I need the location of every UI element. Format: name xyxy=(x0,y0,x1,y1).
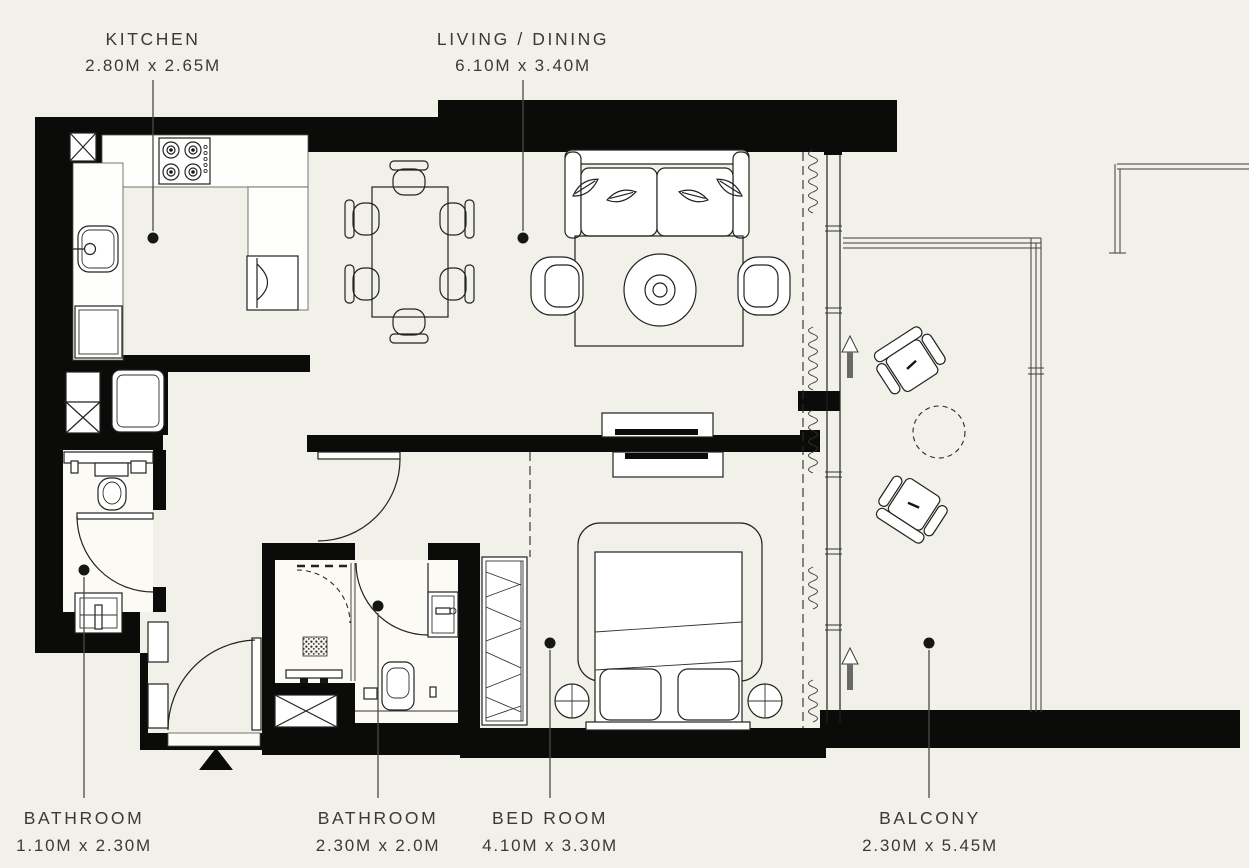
wall-segment xyxy=(262,543,355,560)
direction-arrow-icon xyxy=(842,648,858,690)
floor-plan: KITCHEN 2.80M x 2.65M LIVING / DINING 6.… xyxy=(0,0,1249,868)
wash-basin-icon xyxy=(75,593,122,633)
balcony-railing xyxy=(843,238,1044,712)
living-area xyxy=(531,150,790,437)
wall-segment xyxy=(63,433,163,450)
entrance-marker-icon xyxy=(199,748,233,770)
paper-holder-icon xyxy=(131,461,146,473)
service-shaft-icon xyxy=(70,133,96,161)
stove-icon xyxy=(159,138,210,184)
washing-machine-icon xyxy=(112,370,164,432)
wall-segment xyxy=(458,543,480,755)
tap-icon xyxy=(430,687,436,697)
tap-icon xyxy=(71,461,78,473)
service-shaft-icon xyxy=(66,372,100,433)
sofa xyxy=(565,150,749,238)
dining-area xyxy=(345,161,474,343)
armchair xyxy=(531,257,583,315)
round-coffee-table xyxy=(624,254,696,326)
balcony-round-table-icon xyxy=(913,406,965,458)
wall-segment xyxy=(820,710,1240,748)
dining-chair xyxy=(440,200,474,238)
wall-segment xyxy=(262,543,275,683)
wardrobe-icon xyxy=(482,557,527,725)
room-label-kitchen: KITCHEN xyxy=(105,29,200,49)
balcony-chair-icon xyxy=(868,322,949,400)
room-dims-kitchen: 2.80M x 2.65M xyxy=(85,56,221,75)
toilet-icon xyxy=(382,662,414,710)
room-label-bathroom-1: BATHROOM xyxy=(24,808,145,828)
dining-chair xyxy=(345,265,379,303)
service-shaft-icon xyxy=(275,695,337,727)
wall-segment xyxy=(35,372,63,653)
wall-segment xyxy=(798,391,840,411)
oven-icon xyxy=(247,256,298,310)
dining-chair xyxy=(390,309,428,343)
wall-segment xyxy=(460,728,826,758)
room-dims-bathroom-1: 1.10M x 2.30M xyxy=(16,836,152,855)
room-label-bedroom: BED ROOM xyxy=(492,808,608,828)
double-bed xyxy=(586,552,750,730)
wall-segment xyxy=(307,435,807,452)
direction-arrow-icon xyxy=(842,336,858,378)
bedroom-door xyxy=(318,452,400,541)
room-label-living-dining: LIVING / DINING xyxy=(437,29,609,49)
nightstand-icon xyxy=(748,684,782,718)
dining-chair xyxy=(440,265,474,303)
balcony xyxy=(843,164,1249,712)
adjacent-structure-line xyxy=(1109,164,1249,253)
room-dims-living-dining: 6.10M x 3.40M xyxy=(455,56,591,75)
wall-segment xyxy=(153,587,166,612)
window-wall xyxy=(803,150,858,728)
room-label-balcony: BALCONY xyxy=(879,808,981,828)
wall-segment xyxy=(308,135,438,152)
bedroom xyxy=(482,452,782,730)
wall-segment xyxy=(438,100,897,152)
armchair xyxy=(738,257,790,315)
entry-door xyxy=(148,622,261,730)
refrigerator-icon xyxy=(75,306,122,358)
tv-console-bedroom xyxy=(613,452,723,477)
nightstand-icon xyxy=(555,684,589,718)
dining-table xyxy=(372,187,448,317)
dining-chair xyxy=(390,161,428,195)
kitchen-sink-icon xyxy=(73,226,118,272)
sliding-window-frame xyxy=(824,150,842,728)
room-dims-bathroom-2: 2.30M x 2.0M xyxy=(316,836,441,855)
shower-drain-icon xyxy=(303,637,327,656)
entry-threshold xyxy=(168,733,260,746)
floor-plan-canvas: KITCHEN 2.80M x 2.65M LIVING / DINING 6.… xyxy=(0,0,1249,868)
wall-segment xyxy=(262,723,480,755)
pillow-icon xyxy=(678,669,739,720)
shower-floor xyxy=(275,560,353,683)
dining-chair xyxy=(345,200,379,238)
balcony-chair-icon xyxy=(870,470,951,548)
pillow-icon xyxy=(600,669,661,720)
room-label-bathroom-2: BATHROOM xyxy=(318,808,439,828)
wall-segment xyxy=(35,117,438,135)
wash-basin-icon xyxy=(428,592,458,637)
tv-console-living xyxy=(602,413,713,437)
toilet-icon xyxy=(95,463,128,510)
accessory xyxy=(364,688,377,699)
wall-segment xyxy=(153,450,166,510)
room-dims-bedroom: 4.10M x 3.30M xyxy=(482,836,618,855)
room-dims-balcony: 2.30M x 5.45M xyxy=(862,836,998,855)
